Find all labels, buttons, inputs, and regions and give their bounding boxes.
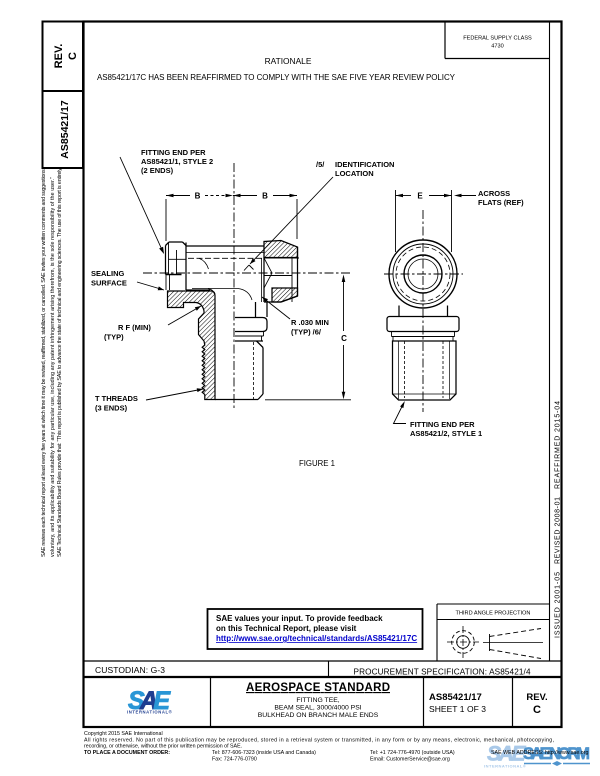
svg-text:FITTING END PER: FITTING END PER (141, 148, 206, 157)
svg-text:AS85421/17: AS85421/17 (429, 692, 482, 703)
svg-text:C: C (341, 334, 347, 343)
svg-text:T THREADS: T THREADS (95, 394, 138, 403)
svg-text:SURFACE: SURFACE (91, 279, 127, 288)
svg-text:CUSTODIAN: G-3: CUSTODIAN: G-3 (95, 665, 165, 675)
svg-text:TO PLACE A DOCUMENT ORDER:: TO PLACE A DOCUMENT ORDER: (84, 750, 170, 756)
svg-text:REVISED 2008-01: REVISED 2008-01 (555, 497, 562, 564)
svg-text:RATIONALE: RATIONALE (265, 56, 312, 66)
svg-text:BEAM SEAL, 3000/4000 PSI: BEAM SEAL, 3000/4000 PSI (274, 705, 361, 712)
svg-text:FLATS (REF): FLATS (REF) (478, 198, 524, 207)
svg-text:C: C (67, 52, 79, 60)
svg-text:R F (MIN): R F (MIN) (118, 323, 151, 332)
svg-text:Fax: 724-776-0790: Fax: 724-776-0790 (212, 757, 257, 763)
svg-text:Copyright 2015 SAE Internation: Copyright 2015 SAE International (84, 731, 163, 737)
svg-text:SAE WEB ADDRESS: http://www.sa: SAE WEB ADDRESS: http://www.sae.org (491, 750, 588, 756)
svg-text:C: C (533, 704, 541, 716)
svg-text:INTERNATIONAL®: INTERNATIONAL® (484, 764, 526, 769)
svg-text:SAE Technical Standards Board: SAE Technical Standards Board Rules prov… (57, 168, 63, 557)
svg-text:Tel: 877-606-7323 (inside USA: Tel: 877-606-7323 (inside USA and Canada… (212, 750, 316, 756)
svg-text:Tel: +1 724-776-4970 (outside: Tel: +1 724-776-4970 (outside USA) (370, 750, 455, 756)
svg-text:INTERNATIONAL®: INTERNATIONAL® (127, 710, 173, 715)
svg-text:AS85421/17: AS85421/17 (59, 100, 71, 159)
svg-text:THIRD ANGLE PROJECTION: THIRD ANGLE PROJECTION (456, 611, 531, 617)
svg-text:AS85421/17C HAS BEEN REAFFIRME: AS85421/17C HAS BEEN REAFFIRMED TO COMPL… (97, 73, 456, 82)
svg-text:http://www.sae.org/technical/s: http://www.sae.org/technical/standards/A… (216, 634, 417, 643)
svg-text:FIGURE 1: FIGURE 1 (299, 459, 335, 468)
svg-text:ISSUED 2001-05: ISSUED 2001-05 (555, 572, 562, 638)
svg-text:FITTING END PER: FITTING END PER (410, 420, 475, 429)
svg-text:/5/: /5/ (316, 160, 325, 169)
svg-text:B: B (195, 192, 201, 201)
svg-text:SAE reviews each technical rep: SAE reviews each technical report at lea… (41, 168, 47, 557)
svg-text:R .030 MIN: R .030 MIN (291, 318, 329, 327)
svg-text:SEALING: SEALING (91, 269, 125, 278)
svg-text:AS85421/2, STYLE 1: AS85421/2, STYLE 1 (410, 429, 482, 438)
svg-text:(TYP): (TYP) (104, 333, 124, 342)
svg-text:REV.: REV. (53, 44, 65, 69)
svg-text:4730: 4730 (491, 44, 503, 50)
svg-text:(3 ENDS): (3 ENDS) (95, 404, 128, 413)
svg-text:AEROSPACE STANDARD: AEROSPACE STANDARD (246, 682, 390, 694)
svg-text:recording, or otherwise, witho: recording, or otherwise, without the pri… (84, 744, 242, 750)
svg-text:LOCATION: LOCATION (335, 169, 374, 178)
svg-text:on this Technical Report, plea: on this Technical Report, please visit (216, 624, 357, 633)
svg-text:AS85421/1, STYLE 2: AS85421/1, STYLE 2 (141, 157, 213, 166)
svg-text:voluntary, and its applicabili: voluntary, and its applicability and sui… (50, 177, 56, 557)
svg-text:BULKHEAD ON BRANCH MALE ENDS: BULKHEAD ON BRANCH MALE ENDS (258, 712, 379, 719)
svg-text:(TYP) /6/: (TYP) /6/ (291, 328, 322, 337)
svg-text:PROCUREMENT SPECIFICATION: AS8: PROCUREMENT SPECIFICATION: AS85421/4 (354, 668, 531, 677)
svg-text:SHEET 1 OF 3: SHEET 1 OF 3 (429, 704, 486, 714)
svg-text:IDENTIFICATION: IDENTIFICATION (335, 160, 394, 169)
svg-text:FEDERAL SUPPLY CLASS: FEDERAL SUPPLY CLASS (463, 36, 532, 42)
svg-text:FITTING TEE,: FITTING TEE, (296, 697, 339, 704)
svg-text:Email: CustomerService@sae.org: Email: CustomerService@sae.org (370, 757, 450, 763)
svg-text:SAE values your input. To prov: SAE values your input. To provide feedba… (216, 614, 383, 623)
svg-text:REAFFIRMED 2015-04: REAFFIRMED 2015-04 (555, 401, 562, 489)
svg-text:(2 ENDS): (2 ENDS) (141, 166, 174, 175)
svg-text:ACROSS: ACROSS (478, 189, 510, 198)
svg-text:E: E (417, 192, 423, 201)
svg-text:REV.: REV. (526, 692, 547, 703)
svg-text:B: B (262, 192, 268, 201)
